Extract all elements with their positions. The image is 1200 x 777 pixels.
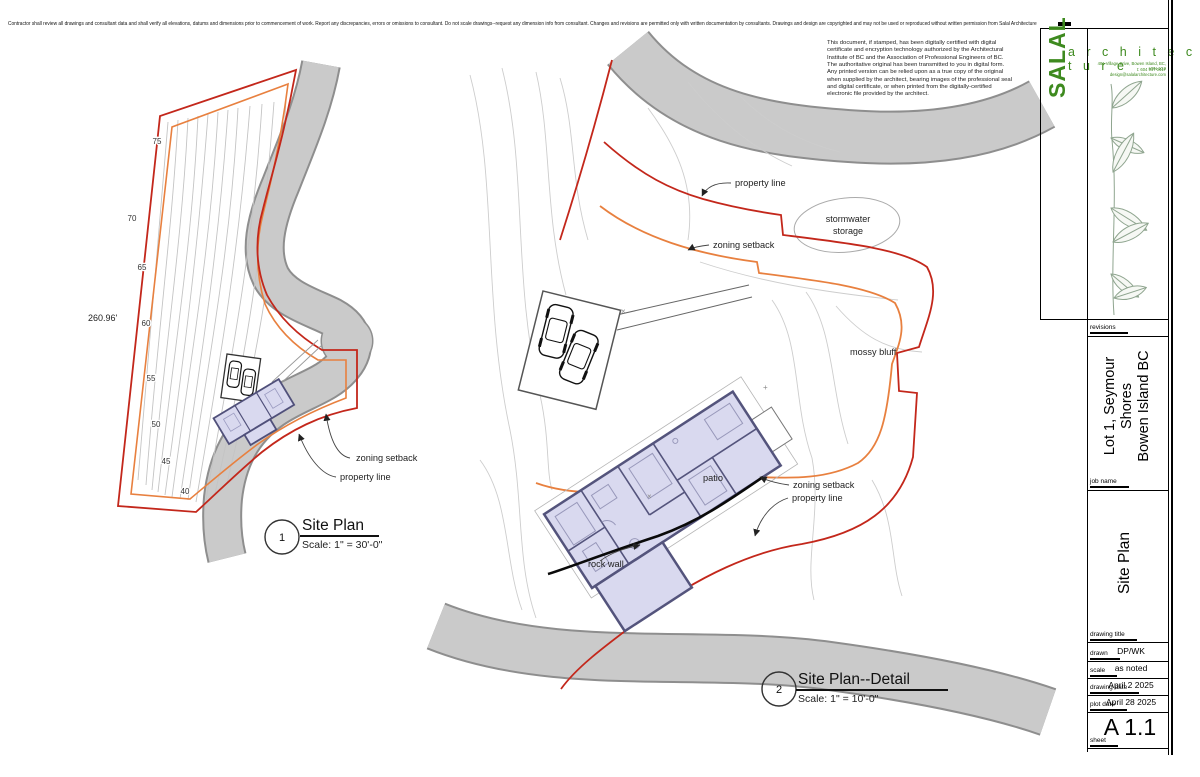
parking-pad [518,291,620,409]
contour-label: 65 [138,263,147,272]
titleblock-divider [1087,748,1168,749]
sheet-label: sheet [1090,737,1118,747]
titleblock-divider [1087,661,1168,662]
contour-label: 45 [162,457,171,466]
callout-scale: Scale: 1" = 30'-0" [302,539,383,551]
callout-number: 1 [279,532,285,544]
dimension-label: 260.96' [88,313,118,323]
logo-address-2: t: 604 947 0417 design@salalarchitecture… [1094,67,1166,78]
rock-wall-label: rock wall [588,559,624,569]
plan1-callout: 1 Site Plan Scale: 1" = 30'-0" [265,517,383,554]
plan1-group: 260.96' 75 70 65 60 55 50 45 40 zoning s… [88,64,418,558]
property-line-label: property line [792,493,843,503]
walkway [612,285,752,330]
road [222,64,352,558]
property-line-label: property line [340,472,391,482]
site-plan-drawing: 260.96' 75 70 65 60 55 50 45 40 zoning s… [0,0,1200,777]
leader-line [755,498,788,536]
patio-label: patio [703,473,723,483]
svg-text:×: × [621,307,626,316]
leaf-branch-illustration [1042,80,1166,318]
titleblock-divider [1087,490,1168,491]
leader-line [326,414,350,458]
svg-text:+: + [763,383,768,392]
road [628,48,1042,138]
job-name-line1: Lot 1, Seymour Shores [1102,336,1136,476]
svg-text:×: × [647,492,652,501]
contour-label: 55 [147,374,156,383]
plan2-group: stormwater storage [436,48,1048,712]
revisions-label: revisions [1090,324,1128,334]
drawing-title: Site Plan [1116,508,1136,618]
titleblock-left-border [1087,28,1088,752]
callout-title: Site Plan--Detail [798,671,910,688]
leader-line [702,183,731,196]
scale-label: scale [1090,667,1117,677]
stormwater-label-2: storage [833,226,863,236]
job-name-line2: Bowen Island BC [1136,336,1153,476]
zoning-setback-label: zoning setback [793,480,855,490]
contour-label: 70 [128,214,137,223]
mossy-bluff-label: mossy bluff [850,347,897,357]
zoning-setback-label: zoning setback [356,453,418,463]
titleblock-divider [1087,642,1168,643]
drawing-date-label: drawing date [1090,684,1139,694]
callout-title: Site Plan [302,517,364,534]
leader-line [299,434,336,477]
stormwater-label-1: stormwater [826,214,871,224]
building-footprint [535,372,831,637]
drawing-title-label: drawing title [1090,631,1137,641]
zoning-setback-label: zoning setback [713,240,775,250]
contour-label: 75 [153,137,162,146]
sheet-right-border-inner [1168,0,1169,755]
property-line-label: property line [735,178,786,188]
contour-label: 40 [181,487,190,496]
titleblock-divider [1087,695,1168,696]
contour-label: 50 [152,420,161,429]
road [436,626,1048,712]
job-name-label: job name [1090,478,1129,488]
stormwater-storage-area [791,193,902,258]
drawing-sheet: Contractor shall review all drawings and… [0,0,1200,777]
titleblock-divider [1087,712,1168,713]
plot-date-label: plot date [1090,701,1127,711]
callout-number: 2 [776,684,782,696]
sheet-right-border-outer [1171,0,1173,755]
job-name: Lot 1, Seymour Shores Bowen Island BC [1102,336,1138,476]
drawn-label: drawn [1090,650,1120,660]
contour-label: 60 [142,319,151,328]
callout-scale: Scale: 1" = 10'-0" [798,693,879,705]
titleblock-divider [1087,678,1168,679]
property-line [560,60,612,240]
